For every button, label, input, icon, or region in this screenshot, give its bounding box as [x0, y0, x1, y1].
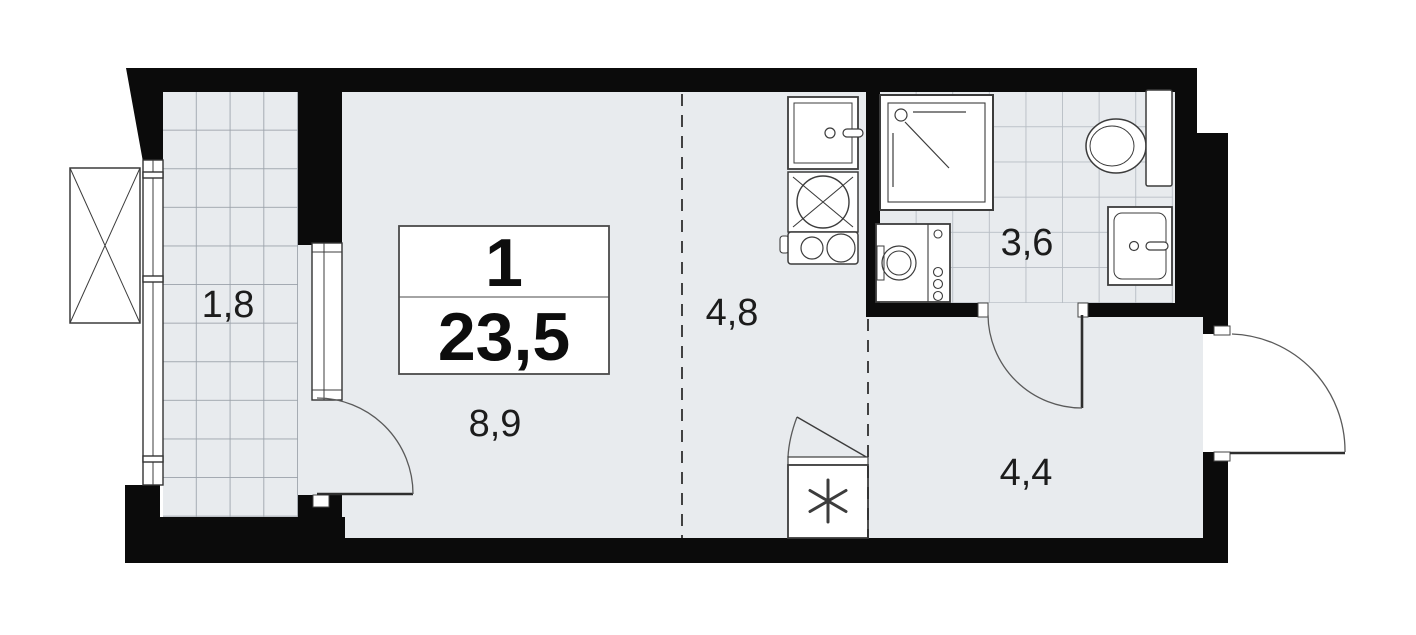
wall-segment-bath-bottom-left — [866, 303, 980, 317]
jamb — [1214, 452, 1230, 461]
bathroom-sink — [1108, 207, 1172, 285]
wall-segment-right-bathroom — [1175, 133, 1228, 317]
jamb — [1078, 303, 1088, 317]
balcony-glazing — [143, 160, 163, 485]
floor-plan: 1,8 8,9 4,8 3,6 4,4 1 23,5 — [0, 0, 1416, 635]
wall-segment-right-upper — [1175, 92, 1197, 137]
kitchen-stove — [780, 232, 858, 264]
shower-cabin — [880, 95, 993, 210]
kitchen-hob — [788, 172, 858, 232]
unit-rooms-count: 1 — [485, 225, 523, 301]
jamb — [1214, 326, 1230, 335]
entrance-door — [1230, 334, 1345, 453]
area-label-bathroom: 3,6 — [1001, 222, 1054, 264]
washing-machine — [876, 224, 950, 302]
jamb — [313, 495, 329, 507]
unit-total-area: 23,5 — [438, 299, 570, 375]
area-label-kitchen: 4,8 — [706, 292, 759, 334]
wall-segment-balcony-partition — [298, 68, 342, 245]
kitchen-sink — [788, 97, 863, 169]
area-label-living: 8,9 — [469, 403, 522, 445]
area-label-hallway: 4,4 — [1000, 452, 1053, 494]
partition-window — [312, 243, 342, 400]
wall-segment-bath-bottom-right — [1078, 303, 1175, 317]
wall-segment-balcony-bottom-corner — [125, 485, 160, 563]
unit-info-box: 1 23,5 — [399, 225, 609, 375]
area-label-balcony: 1,8 — [202, 284, 255, 326]
jamb — [978, 303, 988, 317]
ac-unit — [70, 168, 140, 323]
wall-segment-bottom — [340, 538, 1228, 563]
